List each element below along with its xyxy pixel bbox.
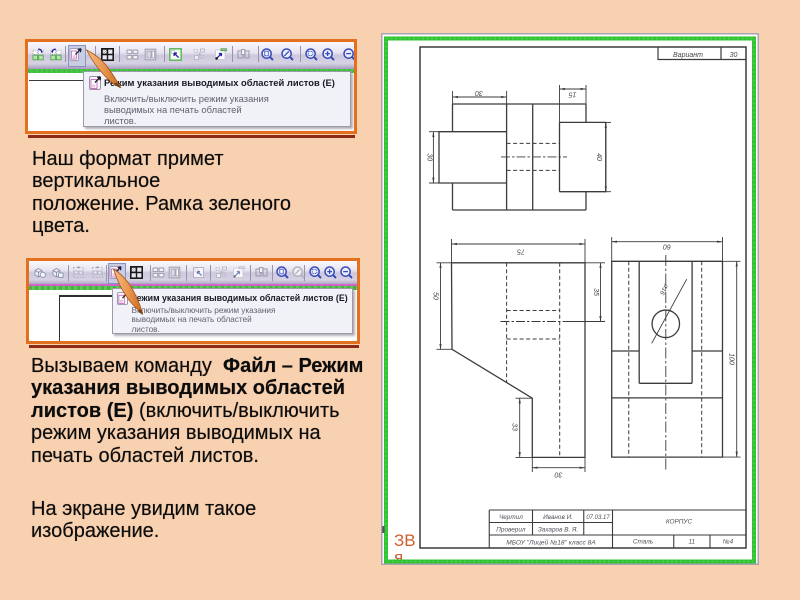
svg-text:МБОУ "Лицей №18" класс 8А: МБОУ "Лицей №18" класс 8А [506,539,596,547]
svg-text:КОРПУС: КОРПУС [666,519,693,526]
svg-text:30: 30 [475,89,483,96]
svg-text:30: 30 [555,471,563,478]
svg-text:Вариант: Вариант [673,52,703,59]
svg-text:07.03.17: 07.03.17 [586,515,610,521]
svg-text:40: 40 [595,153,602,161]
svg-text:Чертил: Чертил [499,514,523,521]
svg-text:33: 33 [511,423,518,431]
svg-text:35: 35 [592,288,599,296]
svg-text:15: 15 [569,91,577,98]
svg-text:Иванов И.: Иванов И. [543,514,573,521]
svg-text:Сталь: Сталь [633,539,653,546]
svg-text:11: 11 [688,539,695,546]
svg-text:60: 60 [663,243,671,250]
svg-text:50: 50 [432,292,439,300]
svg-text:№4: №4 [723,539,734,546]
svg-text:Проверил: Проверил [496,527,526,534]
svg-text:100: 100 [728,353,735,365]
svg-text:75: 75 [517,248,525,255]
svg-text:30: 30 [426,153,433,161]
svg-text:30: 30 [730,52,738,59]
svg-text:ø16: ø16 [658,283,670,297]
svg-text:Захаров В. Я.: Захаров В. Я. [538,527,578,534]
